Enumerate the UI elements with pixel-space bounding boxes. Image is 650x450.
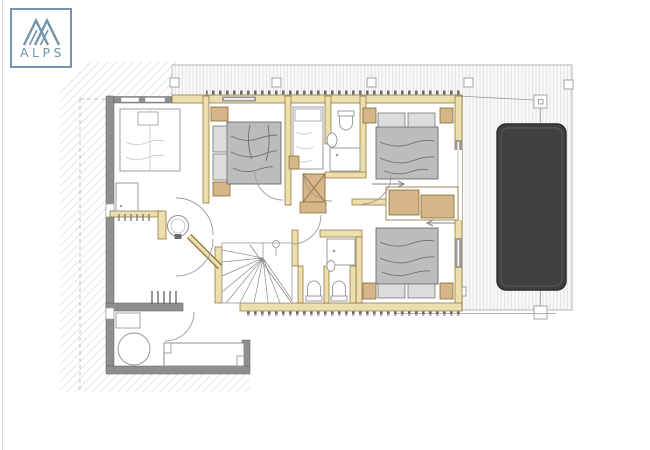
hot-tub [497, 124, 566, 290]
pillow [378, 113, 405, 127]
shower-tray [116, 183, 138, 211]
log-ticks-top [206, 91, 460, 96]
round-table [118, 333, 150, 365]
pillow [408, 113, 435, 127]
floor-plan-page: ALPS [0, 0, 650, 450]
pillow [295, 109, 321, 121]
single-bed-nook [289, 107, 323, 169]
double-bed [227, 122, 281, 184]
shelf [116, 313, 140, 328]
nightstand [440, 283, 453, 299]
toilet [338, 111, 354, 130]
nightstand [289, 156, 299, 169]
pillow [213, 154, 227, 180]
log-ticks-bottom [244, 312, 460, 317]
nightstand [440, 108, 453, 123]
shower [330, 148, 360, 171]
alps-logo: ALPS [10, 8, 72, 68]
logo-text: ALPS [20, 47, 65, 60]
toilet [306, 281, 322, 301]
floor-plan-drawing [0, 0, 650, 450]
daybed-bench [164, 343, 244, 366]
double-bed [376, 228, 438, 284]
washbasin [327, 133, 337, 147]
staircase [222, 241, 292, 304]
pillow [378, 284, 405, 298]
dresser [300, 202, 326, 213]
pillow [213, 126, 227, 152]
washbasin [327, 261, 335, 272]
nightstand [211, 107, 228, 121]
mountain-peaks-icon [21, 16, 61, 46]
chimney-shaft [303, 174, 325, 202]
pillow [138, 112, 158, 125]
pillow [408, 284, 435, 298]
nightstand [363, 108, 376, 123]
nightstand [363, 283, 376, 299]
tap [175, 234, 182, 239]
toilet [331, 281, 347, 301]
